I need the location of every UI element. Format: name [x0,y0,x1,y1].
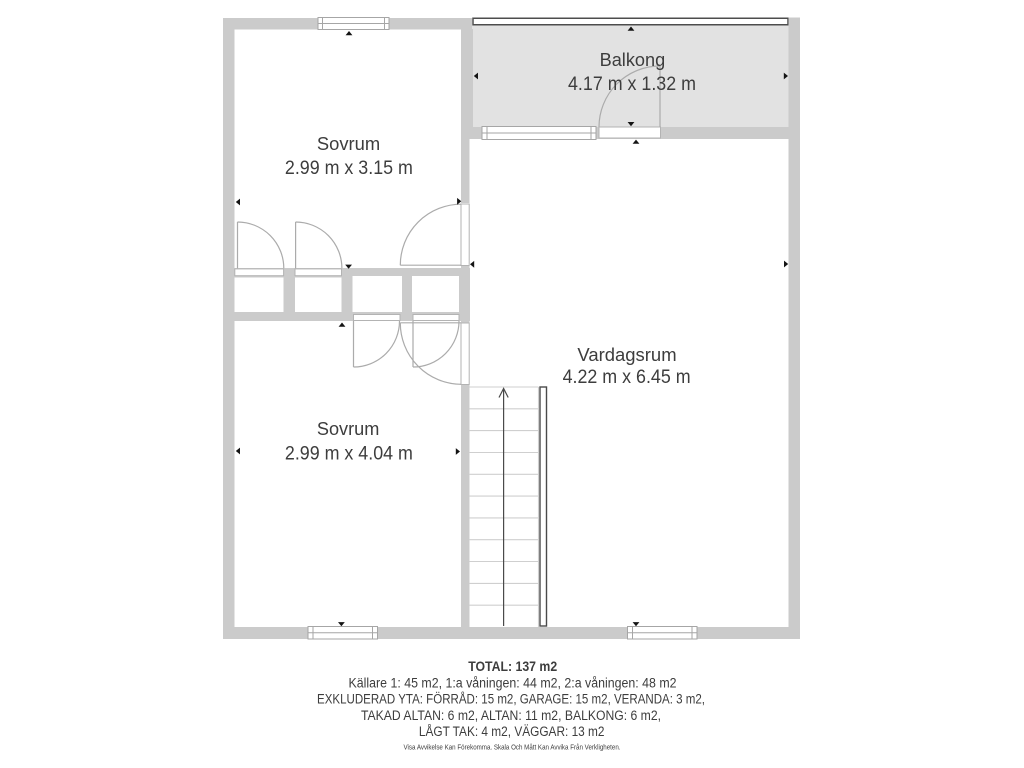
svg-text:4.17 m x 1.32 m: 4.17 m x 1.32 m [568,73,696,95]
svg-text:Balkong: Balkong [600,49,666,70]
svg-text:2.99 m x 4.04 m: 2.99 m x 4.04 m [285,442,413,464]
svg-text:LÅGT TAK: 4 m2, VÄGGAR: 13 m2: LÅGT TAK: 4 m2, VÄGGAR: 13 m2 [419,724,605,739]
svg-text:Källare 1: 45 m2, 1:a våningen: Källare 1: 45 m2, 1:a våningen: 44 m2, 2… [349,676,677,691]
svg-text:Vardagsrum: Vardagsrum [577,344,676,365]
svg-text:TAKAD ALTAN: 6 m2, ALTAN: 11 m: TAKAD ALTAN: 6 m2, ALTAN: 11 m2, BALKONG… [361,708,661,723]
svg-text:TOTAL: 137 m2: TOTAL: 137 m2 [468,658,557,674]
svg-text:2.99 m x 3.15 m: 2.99 m x 3.15 m [285,157,413,179]
svg-text:Sovrum: Sovrum [317,133,380,154]
svg-text:Visa Avvikelse Kan Förekomma.: Visa Avvikelse Kan Förekomma. Skala Och … [404,744,621,752]
svg-text:EXKLUDERAD YTA: FÖRRÅD: 15 m2,: EXKLUDERAD YTA: FÖRRÅD: 15 m2, GARAGE: 1… [317,692,705,707]
svg-text:4.22 m x 6.45 m: 4.22 m x 6.45 m [563,366,691,388]
svg-text:Sovrum: Sovrum [317,418,380,439]
